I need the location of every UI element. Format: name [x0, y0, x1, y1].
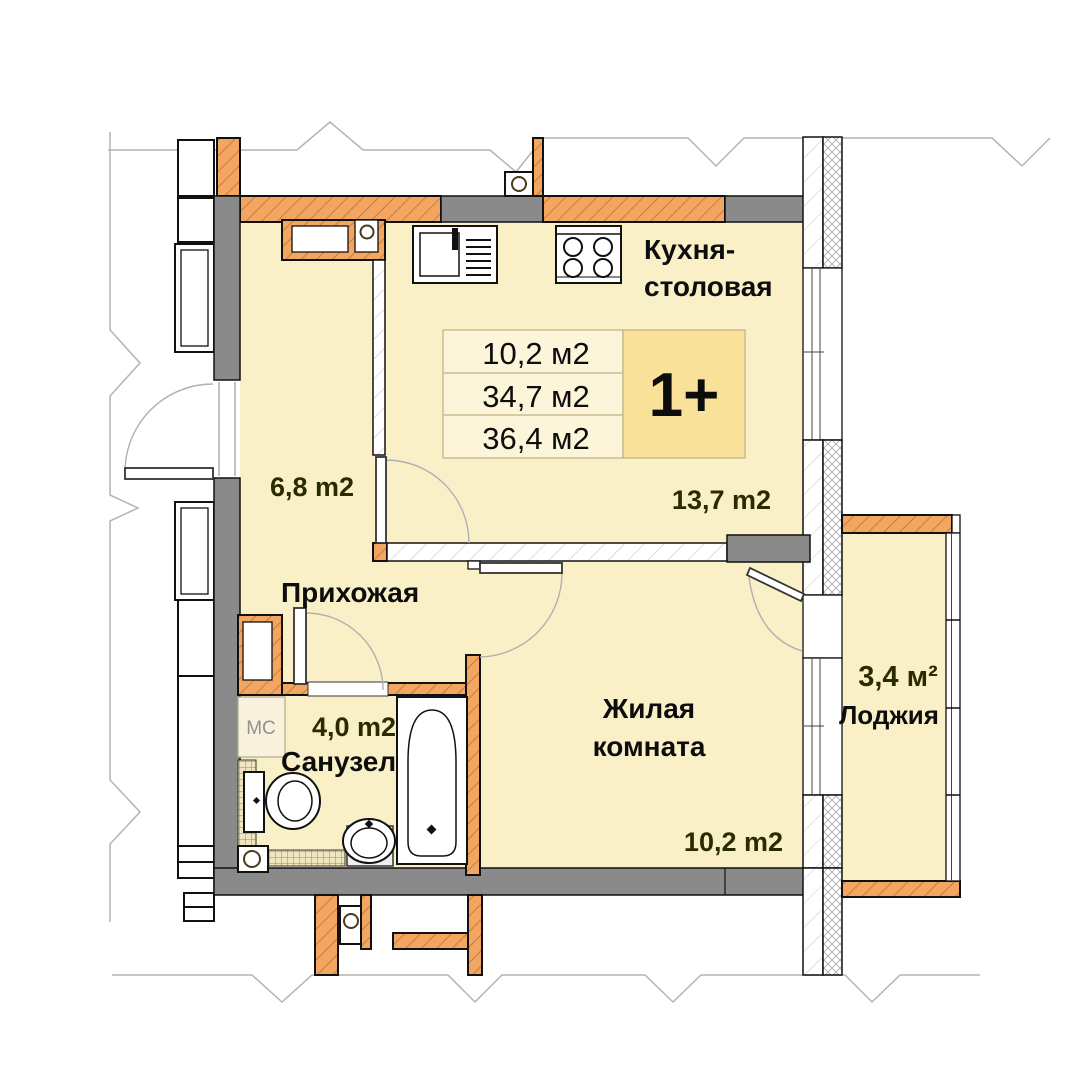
niche-opening [243, 622, 272, 680]
stat-room-area: 10,2 м2 [482, 336, 590, 371]
wall-layer-insulation [823, 795, 842, 868]
living-label-line2: комната [593, 731, 706, 762]
stat-living-area: 34,7 м2 [482, 379, 590, 414]
corridor-box [178, 862, 214, 878]
neighbor-walls-bottom [315, 895, 482, 975]
corridor-box-inner [181, 508, 208, 594]
entry-door-leaf [125, 468, 213, 479]
wall-layer-insulation [823, 440, 842, 595]
wall-segment-concrete [725, 196, 808, 222]
loggia-bottom-wall [842, 881, 960, 897]
neighbor-wall [315, 895, 338, 975]
kitchen-label-line2: столовая [644, 271, 773, 302]
partition-wall [387, 543, 727, 561]
vent-circle-icon [344, 914, 358, 928]
stat-total-area: 36,4 м2 [482, 421, 590, 456]
corridor-box [178, 676, 214, 846]
neighbor-walls-top [217, 138, 543, 196]
unit-type-badge: 1+ [649, 361, 720, 430]
neighbor-wall [393, 933, 470, 949]
entry-door-arc [125, 384, 213, 472]
neighbor-wall [468, 895, 482, 975]
living-door-leaf [480, 563, 562, 573]
wall-segment-concrete [214, 196, 240, 380]
sink-tap [452, 228, 458, 250]
burner [594, 259, 612, 277]
corridor-box [184, 893, 214, 907]
wall-layer-inner [803, 868, 823, 975]
partition-wall [373, 260, 385, 455]
hallway-area-label: 6,8 m2 [270, 472, 354, 502]
vent-circle-icon [512, 177, 526, 191]
niche-opening [292, 226, 348, 252]
floor-plan-page: 10,2 м2 34,7 м2 36,4 м2 1+ Кухня- столов… [0, 0, 1080, 1080]
corridor-window-inner [181, 250, 208, 346]
wall-end-brick [373, 543, 387, 561]
corridor-box [178, 846, 214, 862]
wall-segment-concrete [727, 535, 810, 562]
top-wall [240, 196, 808, 222]
wall-layer-inner [803, 795, 823, 868]
break-line-left [110, 132, 140, 922]
bathroom-area-label: 4,0 m2 [312, 712, 396, 742]
loggia-glazing [946, 533, 960, 881]
wall-segment-concrete [214, 868, 810, 895]
loggia-wall-cap [952, 515, 960, 533]
burner [564, 259, 582, 277]
corridor-box [184, 907, 214, 921]
living-area-label: 10,2 m2 [684, 827, 783, 857]
kitchen-sink-icon [413, 226, 497, 283]
info-table: 10,2 м2 34,7 м2 36,4 м2 1+ [443, 330, 745, 458]
floor-tile-strip [258, 850, 345, 866]
loggia-area-label: 3,4 м² [858, 661, 938, 693]
burner [564, 238, 582, 256]
neighbor-wall [217, 138, 240, 196]
wall-layer-insulation [823, 868, 842, 975]
neighbor-wall [533, 138, 543, 196]
bottom-wall [214, 868, 810, 895]
break-line-top [108, 122, 1050, 172]
bathroom-door-opening [308, 682, 388, 696]
floor-plan-canvas: 10,2 м2 34,7 м2 36,4 м2 1+ Кухня- столов… [0, 0, 1080, 1080]
kitchen-window [803, 268, 842, 440]
wall-segment-concrete [214, 478, 240, 893]
left-wall [214, 196, 240, 893]
wall-cap [468, 561, 480, 569]
bathroom-door-leaf [294, 608, 306, 684]
vent-circle-icon [361, 226, 374, 239]
living-label-line1: Жилая [602, 693, 695, 724]
drain-box [238, 846, 268, 872]
corridor-box [178, 600, 214, 676]
break-line-bottom [112, 975, 980, 1002]
balcony-door-opening [803, 595, 842, 658]
drain-circle-icon [244, 851, 260, 867]
washbasin-icon [343, 819, 395, 866]
loggia-top-wall [842, 515, 952, 533]
hallway-label: Прихожая [281, 577, 419, 608]
bathtub-icon [397, 697, 467, 864]
corridor-structures [175, 140, 214, 921]
wall-segment-brick [240, 196, 441, 222]
corridor-box [178, 198, 214, 242]
burner [594, 238, 612, 256]
kitchen-door-leaf [376, 457, 386, 543]
wall-layer-inner [803, 440, 823, 595]
floor-tiles [258, 850, 345, 866]
loggia-label: Лоджия [839, 700, 939, 730]
wall-segment-brick [543, 196, 725, 222]
stove-icon [556, 226, 621, 283]
neighbor-wall [361, 895, 371, 949]
wall-layer-inner [803, 137, 823, 268]
washing-machine-label: МС [246, 718, 276, 739]
wall-segment-concrete [441, 196, 543, 222]
toilet-tank [244, 772, 264, 832]
bathroom-label: Санузел [281, 746, 396, 777]
partition-wall-brick [466, 655, 480, 875]
kitchen-label-line1: Кухня- [644, 234, 735, 265]
kitchen-area-label: 13,7 m2 [672, 485, 771, 515]
corridor-box [178, 140, 214, 196]
wall-layer-insulation [823, 137, 842, 268]
